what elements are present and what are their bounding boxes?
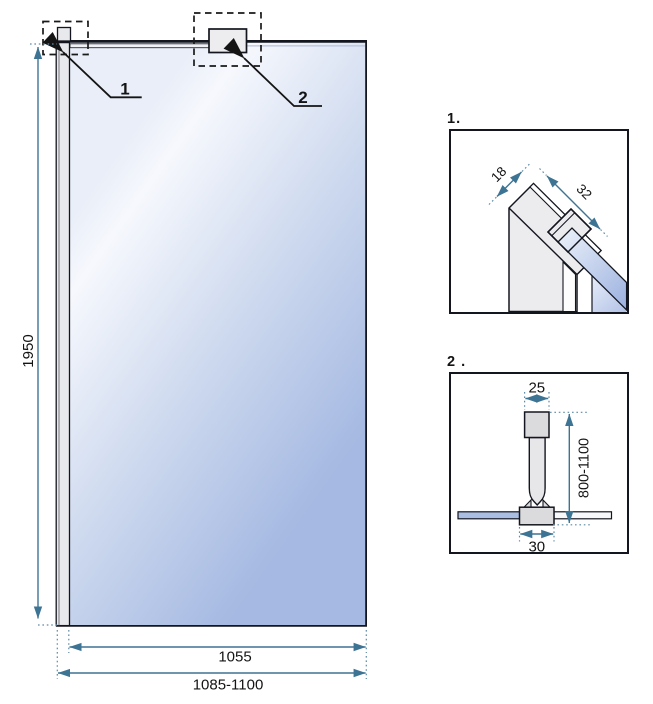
clamp-width-text: 30: [528, 539, 545, 556]
bar-length-text: 800-1100: [577, 438, 593, 498]
block-width-text: 25: [528, 380, 545, 397]
glass-width-dimension: 1055: [69, 630, 367, 666]
total-width-dimension-text: 1085-1100: [193, 677, 264, 694]
diagram-svg: 1 2 1950 1055 1085-1100 1.: [0, 0, 653, 704]
total-width-dimension: 1085-1100: [57, 630, 366, 694]
support-bar-bracket: [209, 29, 247, 53]
height-dimension: 1950: [20, 44, 58, 625]
main-panel-view: 1 2 1950 1055 1085-1100: [20, 13, 367, 694]
wall-mount-block: [525, 412, 549, 438]
bracket-stem: [529, 438, 545, 506]
support-bar-section: [554, 512, 612, 519]
detail-1-title: 1.: [447, 111, 461, 127]
callout-1-label: 1: [120, 80, 129, 99]
wall-profile: [56, 43, 69, 626]
glass-clamp: [520, 507, 555, 525]
detail-2-view: 2 . 25 8: [447, 354, 628, 556]
height-dimension-text: 1950: [20, 334, 37, 367]
support-bar: [70, 44, 209, 48]
detail-2-title: 2 .: [447, 354, 466, 370]
glass-panel: [70, 42, 367, 627]
glass-width-dimension-text: 1055: [218, 649, 251, 666]
callout-2-label: 2: [298, 88, 307, 107]
wall-profile-top-tab: [58, 28, 71, 42]
detail-1-view: 1. 18: [447, 111, 628, 313]
technical-drawing-page: 1 2 1950 1055 1085-1100 1.: [0, 0, 653, 704]
glass-top-edge-section: [458, 512, 520, 519]
